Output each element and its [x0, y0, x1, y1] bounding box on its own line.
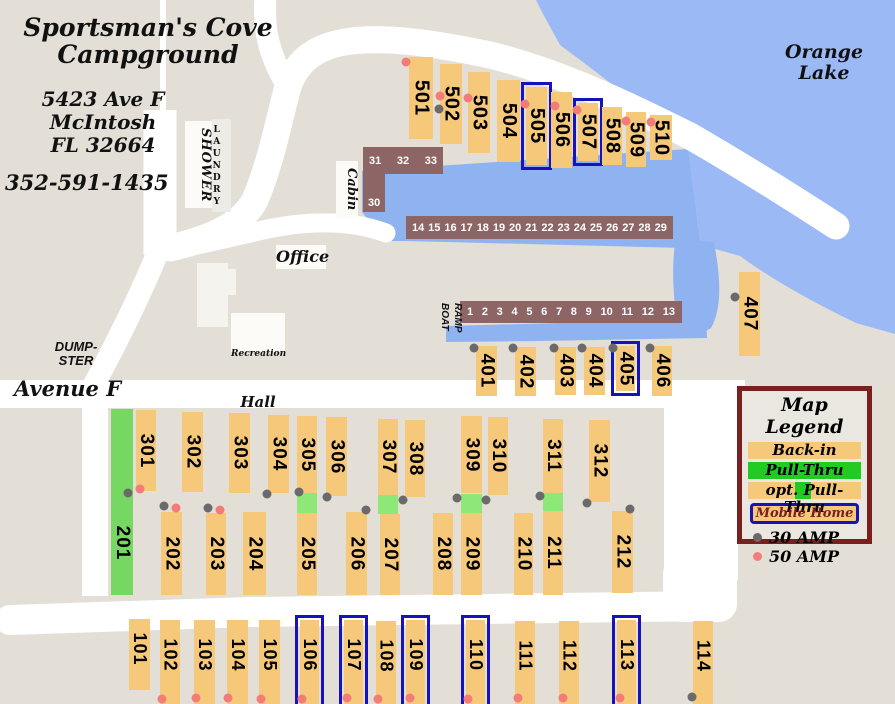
site-109: 109 [406, 620, 425, 704]
recreation-hall-label: Recreation Hall [231, 313, 285, 352]
road-diagonal [90, 252, 158, 392]
site-204: 204 [243, 512, 266, 595]
recreation-hall-line2: Hall [231, 394, 285, 410]
50amp-dot-icon [224, 694, 233, 703]
site-number: 101 [129, 632, 150, 665]
site-504: 504 [497, 80, 520, 162]
site-502: 502 [440, 64, 462, 144]
legend-50amp: 50 AMP [747, 547, 862, 566]
site-number: 307 [377, 440, 399, 475]
site-number: 303 [229, 436, 251, 471]
50amp-dot-icon [616, 694, 625, 703]
site-number: 107 [343, 639, 364, 672]
dock-lower: 12345678910111213 [460, 301, 682, 323]
50amp-dot-icon [559, 694, 568, 703]
site-number: 311 [542, 439, 564, 473]
site-305: 305 [297, 416, 317, 493]
address: 5423 Ave F McIntosh FL 32664 [28, 88, 178, 157]
lake-label: Orange Lake [768, 42, 880, 83]
site-number: 507 [577, 114, 600, 150]
driveway-201 [82, 406, 108, 596]
50amp-dot-icon [514, 694, 523, 703]
site-209: 209 [461, 513, 482, 595]
legend-30amp: 30 AMP [747, 528, 862, 547]
site-number: 103 [194, 639, 215, 672]
30amp-dot-icon [323, 493, 332, 502]
30amp-dot-icon [263, 490, 272, 499]
site-number: 306 [326, 439, 348, 474]
50amp-dot-icon [521, 100, 530, 109]
legend-opt-pull-thru: opt. Pull-Thru [748, 482, 861, 499]
dock-number: 7 [556, 306, 562, 318]
site-301: 301 [136, 410, 156, 491]
site-107: 107 [344, 620, 363, 704]
site-number: 108 [376, 639, 397, 672]
site-207: 207 [380, 514, 400, 595]
50amp-dot-icon [402, 58, 411, 67]
50amp-dot-icon [136, 485, 145, 494]
site-number: 204 [244, 536, 266, 571]
dock-number: 3 [497, 306, 503, 318]
legend-50amp-label: 50 AMP [769, 547, 839, 566]
site-205: 205 [297, 513, 317, 595]
site-number: 310 [487, 439, 509, 474]
30amp-dot-icon [453, 494, 462, 503]
site-302: 302 [182, 412, 203, 492]
phone-number: 352-591-1435 [5, 172, 169, 195]
site-number: 312 [589, 444, 611, 479]
dock-number: 19 [493, 222, 505, 234]
site-112: 112 [559, 621, 579, 704]
dock-number: 15 [428, 222, 440, 234]
50amp-dot-icon [343, 694, 352, 703]
30amp-dot-icon [550, 344, 559, 353]
site-number: 302 [182, 435, 204, 470]
site-501: 501 [409, 57, 433, 139]
site-number: 111 [515, 640, 536, 671]
30amp-dot-icon [362, 506, 371, 515]
50amp-dot-icon [464, 695, 473, 704]
site-number: 205 [296, 537, 318, 572]
site-number: 110 [465, 639, 486, 671]
cabin-label: Cabin [336, 161, 358, 218]
site-312: 312 [589, 420, 610, 502]
site-number: 308 [404, 441, 426, 476]
site-number: 309 [461, 437, 483, 472]
opt-pull-thru-patch [543, 493, 563, 511]
site-405: 405 [616, 346, 635, 391]
site-206: 206 [346, 512, 367, 595]
dock-number: 14 [412, 222, 424, 234]
dumpster-label: DUMP- STER [48, 340, 104, 368]
30amp-dot-icon [509, 344, 518, 353]
site-111: 111 [515, 621, 535, 704]
opt-pull-thru-patch [461, 494, 482, 513]
50amp-dot-icon [464, 94, 473, 103]
dock-number: 23 [558, 222, 570, 234]
road-corner [663, 556, 737, 622]
legend-mobile-home-label: Mobile Home [756, 506, 854, 521]
30amp-dot-icon [482, 496, 491, 505]
dock-number: 31 [369, 155, 381, 167]
site-number: 403 [555, 354, 577, 389]
30amp-dot-icon [399, 496, 408, 505]
dock-number: 2 [482, 306, 488, 318]
recreation-hall-line1: Recreation [231, 350, 285, 360]
dock-number: 5 [526, 306, 532, 318]
dock-number: 11 [621, 306, 633, 318]
site-number: 305 [296, 437, 318, 472]
site-102: 102 [160, 620, 180, 704]
50amp-dot-icon [216, 506, 225, 515]
50amp-dot-icon [406, 694, 415, 703]
site-number: 504 [497, 103, 520, 139]
site-number: 407 [739, 297, 761, 332]
30amp-dot-icon [731, 293, 740, 302]
dock-number: 27 [622, 222, 634, 234]
legend-back-in-label: Back-in [772, 441, 836, 459]
dock-number: 28 [638, 222, 650, 234]
site-number: 203 [205, 537, 227, 572]
30amp-dot-icon [470, 344, 479, 353]
dock-number: 9 [586, 306, 592, 318]
30amp-dot-icon [753, 533, 762, 542]
dock-number: 25 [590, 222, 602, 234]
office-label: Office [276, 245, 326, 269]
dock-number: 33 [425, 155, 437, 167]
30amp-dot-icon [124, 489, 133, 498]
dock-number: 12 [642, 306, 654, 318]
avenue-f-label: Avenue F [14, 378, 121, 401]
50amp-dot-icon [622, 117, 631, 126]
30amp-dot-icon [435, 105, 444, 114]
legend-pull-thru: Pull-Thru [748, 462, 861, 479]
boat-ramp-label: BOAT RAMP [438, 303, 468, 359]
site-110: 110 [466, 620, 485, 704]
site-508: 508 [602, 107, 622, 165]
site-309: 309 [461, 416, 482, 493]
dock-number: 20 [509, 222, 521, 234]
site-108: 108 [376, 621, 396, 704]
site-202: 202 [161, 512, 182, 595]
50amp-dot-icon [257, 695, 266, 704]
dock-number: 26 [606, 222, 618, 234]
campground-map: 14151617181920212223242526272829 1234567… [0, 0, 895, 704]
laundry-label: LAUNDRY [211, 121, 231, 213]
site-number: 208 [432, 537, 454, 572]
dock-number: 30 [368, 197, 380, 209]
dock-number: 29 [655, 222, 667, 234]
site-402: 402 [515, 347, 536, 396]
site-number: 505 [525, 108, 548, 144]
site-311: 311 [543, 419, 563, 493]
site-211: 211 [543, 511, 563, 595]
30amp-dot-icon [160, 502, 169, 511]
site-113: 113 [617, 620, 636, 704]
legend-30amp-label: 30 AMP [769, 528, 839, 547]
30amp-dot-icon [626, 505, 635, 514]
50amp-dot-icon [192, 694, 201, 703]
site-number: 212 [612, 535, 634, 570]
site-210: 210 [514, 513, 533, 595]
site-number: 301 [135, 433, 157, 468]
30amp-dot-icon [578, 344, 587, 353]
site-401: 401 [476, 346, 497, 396]
site-number: 207 [379, 537, 401, 572]
dock-number: 18 [477, 222, 489, 234]
site-number: 104 [227, 639, 248, 672]
cabin-dock-bottom: 30 [363, 174, 385, 212]
site-201: 201 [111, 409, 133, 595]
shower-label: SHOWER [186, 122, 212, 208]
legend-back-in: Back-in [748, 442, 861, 459]
site-303: 303 [229, 413, 250, 493]
office-building [197, 263, 228, 327]
site-number: 508 [601, 118, 624, 154]
50amp-dot-icon [374, 695, 383, 704]
site-307: 307 [378, 419, 398, 495]
legend-pull-thru-label: Pull-Thru [765, 461, 843, 479]
site-104: 104 [227, 620, 248, 704]
site-208: 208 [433, 513, 453, 595]
site-number: 114 [693, 640, 714, 672]
page-title: Sportsman's Cove Campground [12, 14, 284, 68]
30amp-dot-icon [646, 344, 655, 353]
site-number: 102 [160, 639, 181, 672]
cabin-dock-top: 313233 [363, 147, 443, 174]
site-212: 212 [612, 511, 633, 593]
dock-number: 6 [541, 306, 547, 318]
site-number: 502 [440, 86, 463, 122]
site-406: 406 [652, 346, 672, 396]
site-103: 103 [194, 620, 215, 704]
site-number: 201 [111, 526, 133, 561]
site-304: 304 [268, 415, 289, 493]
dock-number: 22 [541, 222, 553, 234]
50amp-dot-icon [551, 102, 560, 111]
site-number: 304 [268, 437, 290, 472]
30amp-dot-icon [536, 492, 545, 501]
50amp-dot-icon [436, 92, 445, 101]
dock-number: 16 [444, 222, 456, 234]
site-114: 114 [693, 621, 713, 704]
50amp-dot-icon [573, 106, 582, 115]
site-number: 109 [405, 639, 426, 672]
50amp-dot-icon [298, 695, 307, 704]
road-bottom [10, 606, 716, 620]
site-101: 101 [129, 619, 150, 690]
dock-number: 17 [461, 222, 473, 234]
office-building-annex [228, 269, 236, 295]
site-number: 401 [476, 354, 498, 389]
site-number: 211 [542, 536, 564, 570]
dock-number: 10 [600, 306, 612, 318]
site-503: 503 [468, 72, 490, 153]
site-number: 206 [346, 536, 368, 571]
site-203: 203 [206, 513, 226, 595]
30amp-dot-icon [583, 499, 592, 508]
50amp-dot-icon [158, 695, 167, 704]
dock-number: 4 [511, 306, 517, 318]
dock-number: 32 [397, 155, 409, 167]
site-308: 308 [405, 420, 425, 497]
30amp-dot-icon [688, 693, 697, 702]
dock-number: 8 [571, 306, 577, 318]
site-number: 202 [161, 536, 183, 571]
site-number: 106 [299, 639, 320, 672]
legend-mobile-home: Mobile Home [750, 503, 859, 524]
site-105: 105 [259, 620, 280, 704]
site-403: 403 [555, 347, 576, 395]
50amp-dot-icon [647, 118, 656, 127]
site-number: 506 [550, 112, 573, 148]
30amp-dot-icon [609, 344, 618, 353]
site-106: 106 [300, 620, 319, 704]
site-number: 210 [513, 537, 535, 572]
site-404: 404 [584, 347, 605, 395]
site-number: 113 [616, 639, 637, 671]
site-number: 105 [259, 639, 280, 672]
dock-number: 21 [525, 222, 537, 234]
site-number: 406 [651, 354, 673, 389]
map-legend: Map Legend Back-in Pull-Thru opt. Pull-T… [737, 386, 872, 544]
site-310: 310 [488, 417, 508, 495]
legend-title: Map Legend [747, 394, 862, 438]
site-number: 501 [410, 80, 433, 116]
site-number: 404 [584, 354, 606, 389]
site-number: 509 [625, 121, 648, 157]
30amp-dot-icon [295, 488, 304, 497]
dock-number: 13 [663, 306, 675, 318]
site-number: 402 [515, 354, 537, 389]
site-number: 209 [461, 537, 483, 572]
opt-pull-thru-patch [378, 495, 398, 514]
site-number: 405 [615, 351, 637, 386]
30amp-dot-icon [204, 504, 213, 513]
site-number: 112 [559, 640, 580, 672]
site-505: 505 [526, 87, 547, 165]
site-407: 407 [739, 272, 760, 356]
50amp-dot-icon [753, 552, 762, 561]
50amp-dot-icon [172, 504, 181, 513]
site-306: 306 [326, 417, 347, 496]
dock-upper: 14151617181920212223242526272829 [406, 216, 673, 239]
dock-number: 24 [574, 222, 586, 234]
